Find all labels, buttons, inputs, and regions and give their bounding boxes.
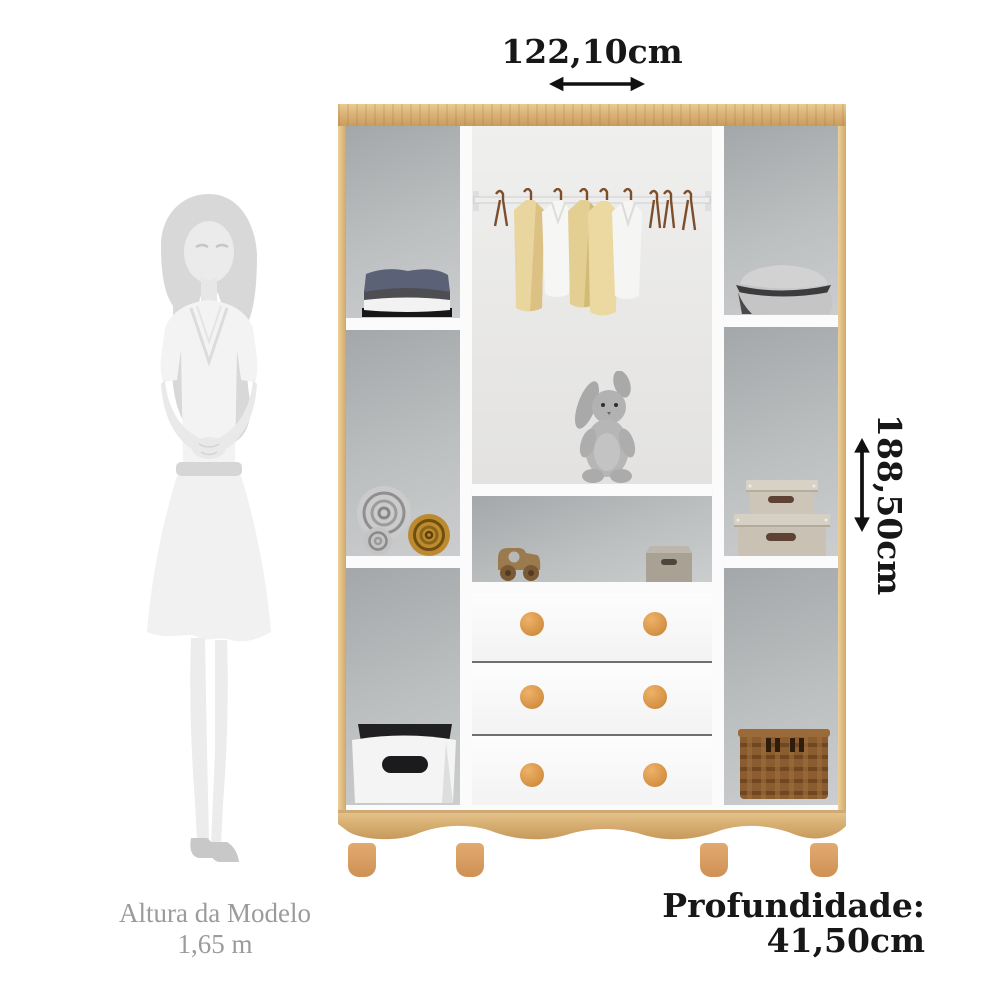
left-side-panel xyxy=(338,126,346,810)
storage-bin xyxy=(350,722,458,805)
right-shoe xyxy=(210,842,239,862)
right-leg xyxy=(211,640,228,844)
product-dimension-diagram: 122,10cm 188,50cm Profundidade: 41,50cm … xyxy=(0,0,1000,1000)
model-height-label: Altura da Modelo xyxy=(60,898,370,929)
drawer-knob xyxy=(643,685,667,709)
model-height-value: 1,65 m xyxy=(60,929,370,960)
wardrobe-body xyxy=(338,126,846,810)
empty-hanger xyxy=(495,191,507,226)
depth-dimension-value: 41,50cm xyxy=(540,924,925,959)
drawer-knob xyxy=(643,612,667,636)
wardrobe-foot xyxy=(348,843,376,877)
woman-silhouette xyxy=(103,190,315,878)
drawer-knob xyxy=(520,763,544,787)
toy-car xyxy=(495,542,543,582)
drawer-1 xyxy=(472,593,712,661)
rolled-blankets xyxy=(348,484,460,556)
folded-clothes xyxy=(356,266,458,318)
model-height-note: Altura da Modelo 1,65 m xyxy=(60,898,370,960)
drawer-knob xyxy=(643,763,667,787)
drawer-knob xyxy=(520,685,544,709)
wardrobe-foot xyxy=(456,843,484,877)
drawer-3 xyxy=(472,736,712,805)
skirt xyxy=(147,476,271,641)
drawer-knob xyxy=(520,612,544,636)
wardrobe xyxy=(338,104,846,884)
left-divider-panel xyxy=(460,126,472,805)
left-leg xyxy=(190,638,209,840)
hanging-rod-and-clothes xyxy=(472,188,712,343)
hands xyxy=(192,437,226,459)
horizontal-double-arrow-icon xyxy=(549,73,645,95)
face xyxy=(184,221,234,283)
waistband xyxy=(176,462,242,476)
right-divider-panel xyxy=(712,126,724,805)
small-box xyxy=(644,546,694,582)
wicker-basket xyxy=(738,727,830,801)
width-dimension-value: 122,10cm xyxy=(430,32,754,71)
depth-dimension: Profundidade: 41,50cm xyxy=(540,889,925,959)
right-side-panel xyxy=(838,126,846,810)
plush-bunny xyxy=(560,371,656,484)
wardrobe-foot xyxy=(700,843,728,877)
drawer-top-rail xyxy=(472,582,712,593)
storage-boxes xyxy=(728,476,834,556)
pillows xyxy=(730,262,836,315)
wardrobe-base xyxy=(338,810,846,846)
height-dimension-value: 188,50cm xyxy=(871,414,909,560)
wardrobe-top-panel xyxy=(338,104,846,128)
drawer-2 xyxy=(472,663,712,734)
depth-dimension-label: Profundidade: xyxy=(540,889,925,924)
wardrobe-foot xyxy=(810,843,838,877)
